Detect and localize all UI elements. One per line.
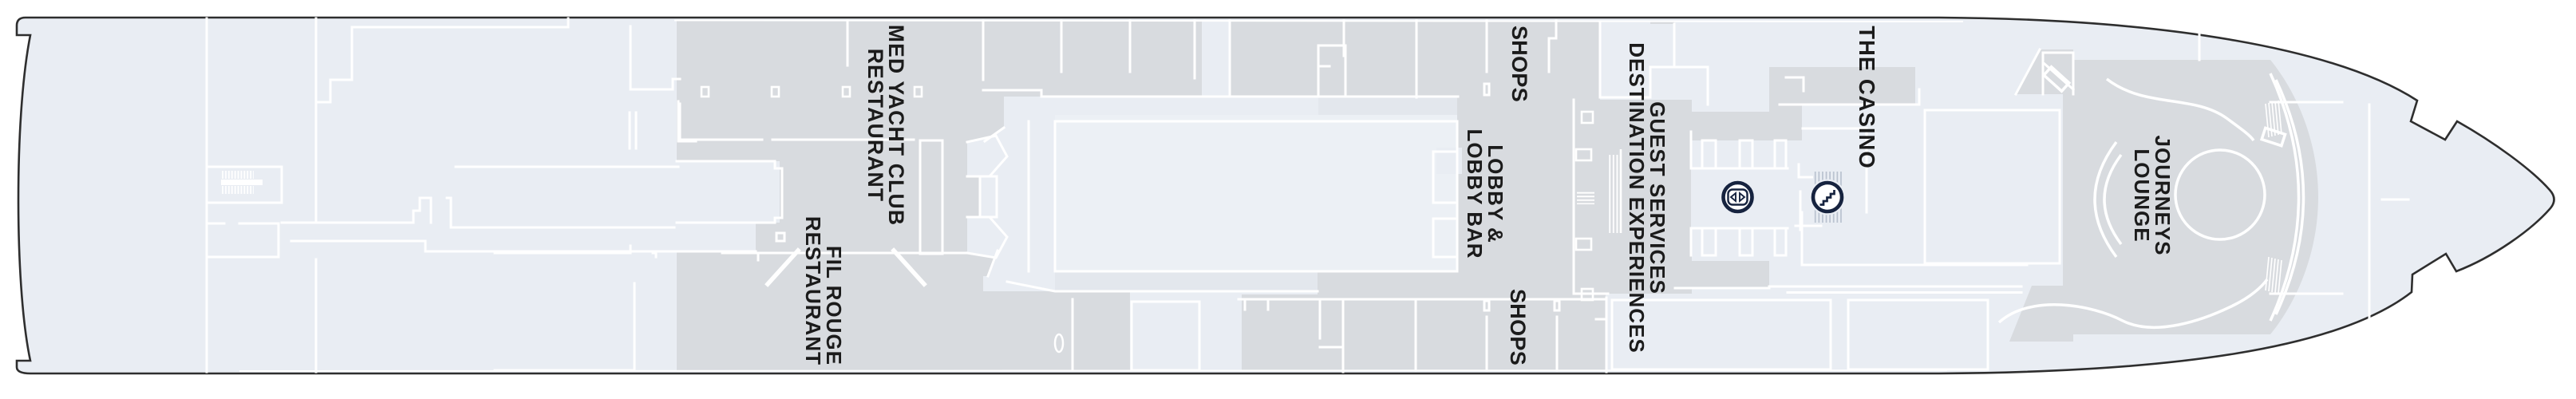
- svg-text:JOURNEYSLOUNGE: JOURNEYSLOUNGE: [2130, 135, 2175, 255]
- svg-text:SHOPS: SHOPS: [1506, 289, 1530, 365]
- svg-text:LOBBY &LOBBY BAR: LOBBY &LOBBY BAR: [1463, 128, 1507, 259]
- svg-text:MED YACHT CLUBRESTAURANT: MED YACHT CLUBRESTAURANT: [863, 25, 908, 226]
- svg-text:THE CASINO: THE CASINO: [1855, 26, 1879, 169]
- svg-text:SHOPS: SHOPS: [1507, 26, 1531, 102]
